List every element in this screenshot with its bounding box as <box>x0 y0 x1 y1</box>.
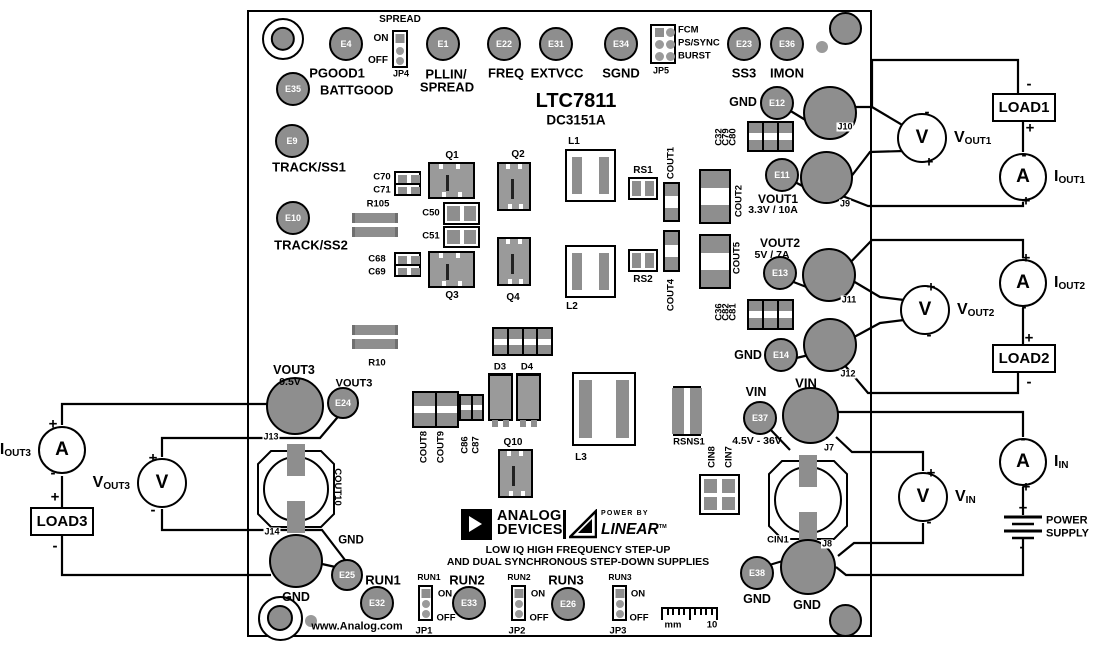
cap-cin8-cin7-pad <box>722 479 735 493</box>
meter-label-main: V <box>955 488 966 505</box>
label-c81: C81 <box>728 303 738 320</box>
linear-name-text: LINEAR <box>601 521 659 538</box>
ic-q3 <box>428 251 475 288</box>
jumper-jp5-pad <box>655 28 664 37</box>
cap-c36-c82-c81-pad <box>764 301 777 328</box>
ic-q10-pin <box>509 491 513 496</box>
ic-q1-pin <box>442 192 446 197</box>
mounting-hole <box>829 604 862 637</box>
meter-label-sub: OUT2 <box>968 308 995 319</box>
ic-q1-pin <box>456 164 460 169</box>
jumper-jp5-pad <box>666 28 675 37</box>
cap-c76-c85-pad <box>538 329 551 354</box>
label-supply: SUPPLY <box>1046 529 1089 540</box>
ruler-tick <box>694 609 696 615</box>
label-c87: C87 <box>471 436 481 453</box>
ruler-tick <box>711 609 713 615</box>
test-point-e9: E9 <box>275 124 309 158</box>
meter-label-sub: IN <box>1058 460 1068 471</box>
test-point-e13: E13 <box>763 256 797 290</box>
label-10: 10 <box>707 620 718 630</box>
jumper-jp2-shunt <box>514 589 523 598</box>
test-point-e35: E35 <box>276 72 310 106</box>
ic-q2-pin <box>519 204 523 209</box>
analog-devices-logo-icon <box>461 509 492 540</box>
label-r10: R10 <box>368 358 385 368</box>
label-burst: BURST <box>678 51 711 61</box>
label-rsns1: RSNS1 <box>673 437 705 447</box>
label-cout1: COUT1 <box>666 147 676 179</box>
label-ltc7811: LTC7811 <box>536 91 617 111</box>
analog-devices-logo-triangle <box>469 516 482 532</box>
polarity-minus: - <box>925 105 930 120</box>
wire-15 <box>62 404 268 425</box>
label-low-iq-high-frequency-step-up: LOW IQ HIGH FREQUENCY STEP-UP <box>486 545 671 556</box>
ic-q1-pin <box>458 192 462 197</box>
inductor-l2 <box>565 245 616 298</box>
jumper-jp5-pad <box>666 40 675 49</box>
label-ss3: SS3 <box>732 67 757 80</box>
wire-13 <box>836 437 923 471</box>
label-extvcc: EXTVCC <box>531 67 584 80</box>
jumper-jp5-pad <box>655 52 664 61</box>
meter-label: VOUT1 <box>954 129 991 147</box>
cap-c76-c85-pad <box>509 329 522 354</box>
diode-d3-leg <box>492 420 498 427</box>
polarity-plus: + <box>149 451 158 466</box>
label-vin: VIN <box>746 386 767 399</box>
polarity-plus: + <box>927 280 936 295</box>
mounting-hole <box>262 18 304 60</box>
cap-c51-pad <box>464 230 477 244</box>
meter-v-out2: V <box>900 285 950 335</box>
cap-cout8-cout9 <box>412 391 459 428</box>
diode-d4-leg <box>531 420 537 427</box>
diode-d3 <box>488 373 513 427</box>
label-rs2: RS2 <box>633 275 652 285</box>
cap-cout2 <box>699 169 731 224</box>
label-q3: Q3 <box>445 291 458 301</box>
jumper-jp3-pin1 <box>616 600 624 608</box>
label-gnd: GND <box>734 349 762 362</box>
ic-q3-pin <box>458 281 462 286</box>
jumper-jp3-shunt <box>615 589 624 598</box>
cap-cout8-cout9-pad <box>414 393 435 426</box>
test-point-e11: E11 <box>765 158 799 192</box>
label-freq: FREQ <box>488 67 524 80</box>
jumper-jp2-pin1 <box>515 600 523 608</box>
wire-14 <box>838 523 923 556</box>
test-point-e31: E31 <box>539 27 573 61</box>
logo-divider <box>563 510 566 539</box>
cap-c68-c69-pad <box>411 268 420 276</box>
label-c86: C86 <box>460 436 470 453</box>
ic-q2-pin <box>508 204 512 209</box>
cap-cin8-cin7-pad <box>722 497 735 511</box>
res-rs2-pad <box>645 253 654 268</box>
inductor-l3 <box>572 372 636 446</box>
jumper-jp3 <box>612 585 627 621</box>
label-and-dual-synchronous-step-down-supplies: AND DUAL SYNCHRONOUS STEP-DOWN SUPPLIES <box>447 557 709 568</box>
label-l3: L3 <box>575 453 587 463</box>
test-point-e34: E34 <box>604 27 638 61</box>
load-box-load3: LOAD3 <box>30 507 94 536</box>
res-rs2 <box>628 249 658 272</box>
label-q2: Q2 <box>511 150 524 160</box>
label-jp4: JP4 <box>393 70 409 79</box>
polarity-minus: - <box>1027 77 1032 92</box>
ic-q4-pin <box>518 239 522 244</box>
cap-c68-c69-pad <box>411 256 420 264</box>
meter-label-sub: OUT3 <box>4 448 31 459</box>
meter-label-main: V <box>957 301 968 318</box>
label-cin7: CIN7 <box>724 446 734 468</box>
label-gnd: GND <box>338 535 364 547</box>
res-rs1-pad <box>632 181 641 196</box>
label-c68: C68 <box>368 254 385 264</box>
test-point-e32: E32 <box>360 586 394 620</box>
label-cout10: COUT10 <box>332 468 342 505</box>
label-4-5v-36v: 4.5V - 36V <box>732 436 782 447</box>
label-cout5: COUT5 <box>732 242 742 274</box>
test-point-e36: E36 <box>770 27 804 61</box>
jumper-jp1-shunt <box>421 589 430 598</box>
ic-q2-pin <box>506 164 510 169</box>
label-pgood1: PGOOD1 <box>309 67 365 80</box>
label-off: OFF <box>368 56 388 66</box>
cap-c68-c69-divider <box>396 264 419 266</box>
ic-q10-pin <box>521 491 525 496</box>
inductor-l1-pad <box>599 157 609 194</box>
diode-d4 <box>516 373 541 427</box>
cap-c70-c71 <box>394 171 421 196</box>
label-cout2: COUT2 <box>734 185 744 217</box>
meter-label-sub: OUT3 <box>103 481 130 492</box>
label-jp3: JP3 <box>610 626 627 636</box>
jumper-jp2 <box>511 585 526 621</box>
polarity-plus: + <box>925 155 934 170</box>
trademark-mark: TM <box>659 524 667 530</box>
polarity-plus: + <box>1022 194 1031 209</box>
cap-c76-c85-pad <box>524 329 537 354</box>
ruler-tick <box>672 609 674 615</box>
label-run3: RUN3 <box>548 574 583 587</box>
test-point-e22: E22 <box>487 27 521 61</box>
label-j14: J14 <box>263 528 280 537</box>
cap-c70-c71-pad <box>411 187 420 195</box>
label-jp5: JP5 <box>653 67 669 76</box>
jumper-jp2-pin2 <box>515 610 523 618</box>
label-j10: J10 <box>836 123 853 132</box>
wire-10 <box>838 412 1023 437</box>
label-r105: R105 <box>367 199 390 209</box>
terminal-j10 <box>803 86 857 140</box>
label-j12: J12 <box>839 370 856 379</box>
label-on: ON <box>531 589 545 599</box>
label-dc3151a: DC3151A <box>546 113 605 127</box>
test-point-e1: E1 <box>426 27 460 61</box>
mounting-hole <box>829 12 862 45</box>
res-r105-bar <box>352 227 398 237</box>
label-cout4: COUT4 <box>666 279 676 311</box>
linear-name: LINEARTM <box>601 522 667 535</box>
ic-q2-mark <box>511 179 514 200</box>
cap-cout1 <box>663 182 680 222</box>
cap-cin8-cin7-pad <box>704 479 717 493</box>
polarity-plus: + <box>1025 331 1034 346</box>
polarity-plus: + <box>1019 501 1028 516</box>
jumper-jp1-pin1 <box>422 600 430 608</box>
label-run2: RUN2 <box>507 573 530 582</box>
label-gnd: GND <box>743 593 771 606</box>
res-rsns1-bar <box>672 388 684 434</box>
ic-q2-pin <box>518 164 522 169</box>
cap-cin1 <box>769 455 847 544</box>
polarity-plus: + <box>927 466 936 481</box>
ic-q4 <box>497 237 531 286</box>
cap-c76-c85-pad <box>494 329 507 354</box>
ic-q4-pin <box>508 279 512 284</box>
cap-c51-pad <box>447 230 460 244</box>
label-gnd: GND <box>729 96 757 109</box>
label-c70: C70 <box>373 172 390 182</box>
label-off: OFF <box>437 613 456 623</box>
jumper-jp1 <box>418 585 433 621</box>
label-mm: mm <box>665 620 682 630</box>
polarity-plus: + <box>49 417 58 432</box>
ruler-tick <box>667 609 669 615</box>
test-point-e4: E4 <box>329 27 363 61</box>
res-rsns1-bar <box>690 388 702 434</box>
cap-c76-c85 <box>492 327 553 356</box>
label-spread: SPREAD <box>420 81 474 94</box>
cap-cin8-cin7 <box>699 474 740 515</box>
test-point-e38: E38 <box>740 556 774 590</box>
ic-q10-pin <box>507 451 511 456</box>
label-ps-sync: PS/SYNC <box>678 38 720 48</box>
ic-q10 <box>498 449 533 498</box>
label-www-analog-com: www.Analog.com <box>311 622 402 633</box>
jumper-jp4-pin2 <box>396 57 404 65</box>
ic-q4-mark <box>511 254 514 275</box>
label-vout3: VOUT3 <box>273 364 315 377</box>
cap-cout5 <box>699 234 731 289</box>
label-on: ON <box>374 34 389 44</box>
label-gnd: GND <box>282 591 310 604</box>
meter-label: VIN <box>955 488 976 506</box>
ruler-tick <box>705 609 707 615</box>
res-r10-bar <box>352 325 398 335</box>
polarity-plus: + <box>1026 121 1035 136</box>
label-d3: D3 <box>494 362 506 372</box>
polarity-minus: - <box>51 466 56 481</box>
jumper-jp1-pin2 <box>422 610 430 618</box>
label-c71: C71 <box>373 185 390 195</box>
ic-q3-pin <box>456 253 460 258</box>
meter-v-out1: V <box>897 113 947 163</box>
cap-c32-c79-c80-pad <box>779 123 792 150</box>
test-point-e37: E37 <box>743 401 777 435</box>
jumper-jp4-pin1 <box>396 47 404 55</box>
cap-c70-c71-pad <box>398 187 407 195</box>
label-vin: VIN <box>795 377 817 390</box>
ic-q3-pin <box>442 281 446 286</box>
label-c80: C80 <box>728 128 738 145</box>
label-j11: J11 <box>841 296 858 305</box>
ic-q1-mark <box>446 175 449 191</box>
inductor-l3-pad <box>579 380 592 438</box>
ruler-tick <box>683 609 685 615</box>
inductor-l2-pad <box>572 253 582 290</box>
ic-q4-pin <box>506 239 510 244</box>
wire-2 <box>847 151 904 182</box>
analog-devices-logo-text: ANALOGDEVICES <box>497 509 563 537</box>
cap-c86-c87-pad <box>461 396 471 419</box>
meter-label-sub: OUT1 <box>965 136 992 147</box>
jumper-jp3-pin2 <box>616 610 624 618</box>
label-vout3: VOUT3 <box>336 379 373 390</box>
mounting-hole-center <box>271 27 295 51</box>
test-point-e24: E24 <box>327 387 359 419</box>
jumper-jp5-pad <box>666 52 675 61</box>
label-j13: J13 <box>262 433 279 442</box>
cap-c50-pad <box>464 206 477 221</box>
cap-cout10 <box>258 444 334 533</box>
res-rs1 <box>628 177 658 200</box>
label-q4: Q4 <box>506 293 519 303</box>
label-c50: C50 <box>422 208 439 218</box>
meter-label: VOUT2 <box>957 301 994 319</box>
ic-q2 <box>497 162 531 211</box>
test-point-e14: E14 <box>764 338 798 372</box>
label-j8: J8 <box>821 540 833 549</box>
meter-label-main: V <box>954 129 965 146</box>
meter-label: IIN <box>1054 453 1068 471</box>
ic-q10-pin <box>519 451 523 456</box>
label-track-ss1: TRACK/SS1 <box>272 161 346 174</box>
cap-c36-c82-c81-pad <box>749 301 762 328</box>
label-track-ss2: TRACK/SS2 <box>274 239 348 252</box>
meter-label-sub: IN <box>966 495 976 506</box>
polarity-minus: - <box>1021 432 1026 447</box>
linear-pre: POWER BY <box>601 508 667 519</box>
label-cin1: CIN1 <box>766 535 790 545</box>
meter-label: IOUT3 <box>0 441 31 459</box>
ruler-tick <box>700 609 702 615</box>
cap-c36-c82-c81-pad <box>779 301 792 328</box>
res-r105 <box>352 212 398 238</box>
cap-c50 <box>443 202 480 225</box>
adi-line2: DEVICES <box>497 523 563 537</box>
jumper-jp4 <box>392 30 408 68</box>
label-off: OFF <box>530 613 549 623</box>
res-rs1-pad <box>645 181 654 196</box>
label-q1: Q1 <box>445 151 458 161</box>
meter-label: IOUT1 <box>1054 168 1085 186</box>
label-c69: C69 <box>368 267 385 277</box>
cap-c50-pad <box>447 206 460 221</box>
label-spread: SPREAD <box>379 15 421 25</box>
adi-line1: ANALOG <box>497 509 563 523</box>
cap-c36-c82-c81 <box>747 299 794 330</box>
terminal-j12 <box>803 318 857 372</box>
label-off: OFF <box>630 613 649 623</box>
label-5v-7a: 5V / 7A <box>754 250 789 261</box>
label-3-3v-10a: 3.3V / 10A <box>748 205 798 216</box>
wire-3 <box>840 195 1023 206</box>
label-run3: RUN3 <box>608 573 631 582</box>
test-point-e12: E12 <box>760 86 794 120</box>
cap-cout4 <box>663 230 680 272</box>
polarity-minus: - <box>1020 540 1025 555</box>
label-power: POWER <box>1046 516 1088 527</box>
label-run1: RUN1 <box>365 574 400 587</box>
test-point-e23: E23 <box>727 27 761 61</box>
label-q10: Q10 <box>504 438 523 448</box>
terminal-j9 <box>800 151 853 204</box>
polarity-minus: - <box>151 503 156 518</box>
jumper-jp4-shunt <box>396 34 405 43</box>
battery-icon <box>1004 517 1042 538</box>
ic-q4-pin <box>519 279 523 284</box>
wire-1 <box>872 107 904 126</box>
label-fcm: FCM <box>678 25 699 35</box>
ruler-tick <box>689 609 691 620</box>
res-r105-bar <box>352 213 398 223</box>
ic-q1-pin <box>439 164 443 169</box>
linear-logo-icon <box>569 509 597 539</box>
polarity-minus: - <box>927 328 932 343</box>
polarity-minus: - <box>1027 375 1032 390</box>
polarity-minus: - <box>53 539 58 554</box>
inductor-l2-pad <box>599 253 609 290</box>
meter-label-main: V <box>93 474 104 491</box>
cap-c32-c79-c80-pad <box>764 123 777 150</box>
cap-c51 <box>443 226 480 248</box>
test-point-e25: E25 <box>331 559 363 591</box>
terminal-j7 <box>782 387 839 444</box>
cap-c70-c71-pad <box>398 175 407 183</box>
label-gnd: GND <box>793 599 821 612</box>
ruler-tick <box>678 609 680 615</box>
linear-logo-text: POWER BYLINEARTM <box>601 508 667 535</box>
cap-c68-c69 <box>394 252 421 277</box>
label-on: ON <box>438 589 452 599</box>
jumper-jp5 <box>650 24 676 64</box>
meter-label: IOUT2 <box>1054 274 1085 292</box>
cap-c68-c69-pad <box>398 268 407 276</box>
ic-q1 <box>428 162 475 199</box>
label-cout9: COUT9 <box>436 431 446 463</box>
ic-q3-mark <box>446 264 449 280</box>
label-imon: IMON <box>770 67 804 80</box>
load-box-load1: LOAD1 <box>992 93 1056 122</box>
jumper-jp5-pad <box>655 40 664 49</box>
load-box-load2: LOAD2 <box>992 344 1056 373</box>
meter-label: VOUT3 <box>93 474 130 492</box>
label-battgood: BATTGOOD <box>320 84 393 97</box>
res-r10 <box>352 324 398 350</box>
wire-17 <box>62 535 271 575</box>
label-vout2: VOUT2 <box>760 237 800 249</box>
cap-c32-c79-c80 <box>747 121 794 152</box>
label-run2: RUN2 <box>449 574 484 587</box>
cap-c70-c71-pad <box>411 175 420 183</box>
label-d4: D4 <box>521 362 533 372</box>
diode-d4-leg <box>520 420 526 427</box>
ruler-tick <box>661 609 663 620</box>
label-c51: C51 <box>422 231 439 241</box>
